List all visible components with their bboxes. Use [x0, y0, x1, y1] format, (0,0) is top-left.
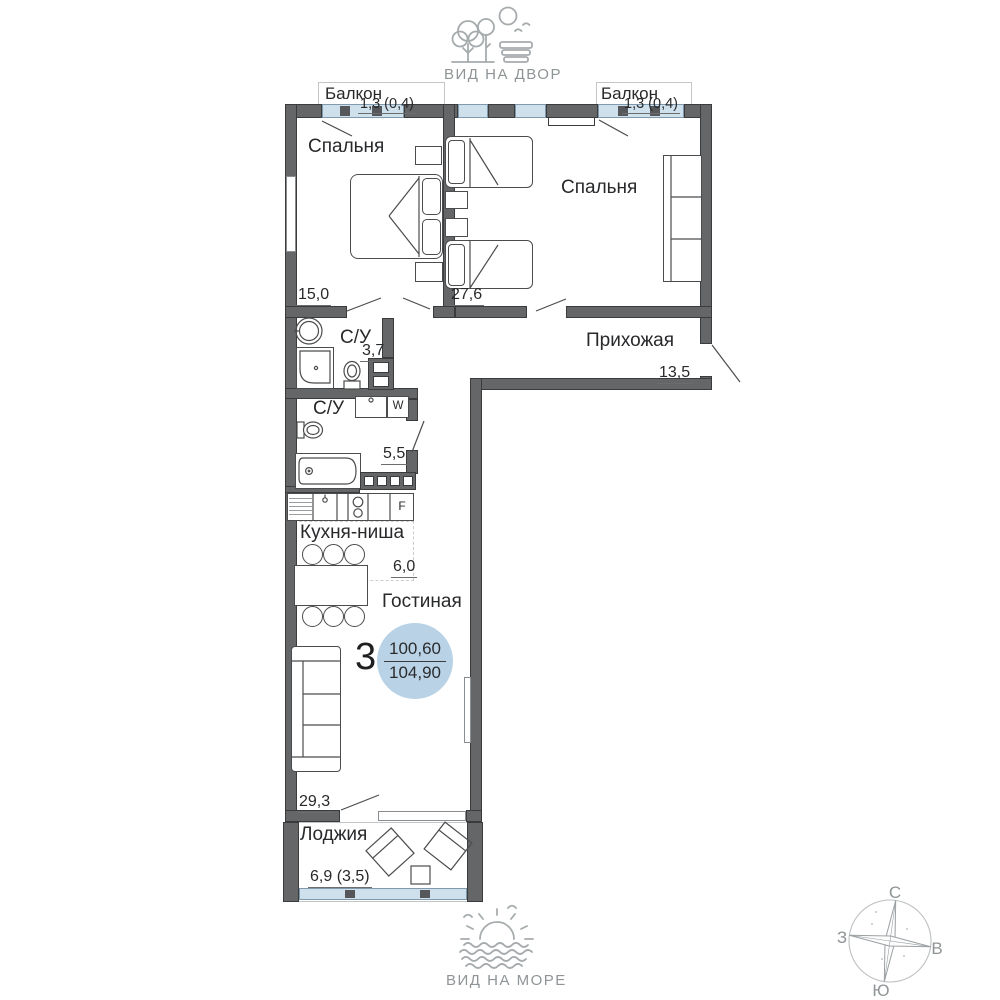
courtyard-view-icon — [448, 4, 548, 66]
sofa — [291, 646, 341, 772]
living-room-label: Гостиная — [382, 591, 462, 613]
compass-west: З — [837, 928, 847, 947]
dining-table — [294, 565, 368, 606]
pillow — [422, 178, 441, 215]
bedroom-right-area: 27,6 — [449, 286, 484, 306]
sea-view-icon — [452, 903, 552, 969]
chair — [344, 606, 365, 627]
compass-rose: С В Ю З — [832, 884, 952, 1000]
pillow — [448, 140, 465, 184]
chair — [323, 606, 344, 627]
window-sill — [378, 811, 466, 821]
bathroom-large-label: С/У — [313, 398, 344, 420]
hallway-label: Прихожая — [586, 330, 674, 352]
nightstand — [445, 218, 468, 237]
vent-shaft-cell — [403, 476, 413, 486]
window-frame — [420, 890, 430, 898]
shower-tray — [296, 347, 334, 389]
vent-shaft-cell — [373, 362, 389, 373]
chair — [302, 544, 323, 565]
floor-plan-page: ВИД НА ДВОР Балкон 1,3 (0,4) Балкон 1,3 … — [0, 0, 1000, 1000]
window-glazing — [515, 104, 546, 118]
wall — [566, 306, 712, 318]
area-badge: 100,60 104,90 — [377, 623, 453, 699]
compass-south: Ю — [872, 981, 889, 1000]
bedroom-left-label: Спальня — [308, 136, 384, 158]
bedroom-right-label: Спальня — [561, 177, 637, 199]
fridge-label: F — [392, 499, 412, 513]
rooms-count: 3 — [355, 636, 376, 679]
nightstand — [415, 146, 442, 165]
window-frame — [340, 106, 350, 116]
balcony-right-area: 1,3 (0,4) — [622, 96, 680, 114]
wall — [433, 306, 455, 318]
window-frame — [345, 890, 355, 898]
total-area-value: 104,90 — [386, 662, 444, 685]
window-glazing — [458, 104, 488, 118]
bathroom-large-area: 5,5 — [381, 445, 407, 465]
pillow — [422, 219, 441, 255]
wall — [285, 306, 347, 318]
sink-drainer — [289, 496, 312, 518]
window-left-wall — [286, 176, 296, 252]
nightstand — [445, 191, 468, 209]
loggia-label: Лоджия — [300, 824, 367, 846]
wall — [467, 822, 483, 902]
chair — [344, 544, 365, 565]
wall — [466, 810, 482, 822]
vent-shaft-cell — [373, 376, 389, 387]
wall — [546, 104, 598, 118]
wall — [406, 450, 418, 474]
window-glazing — [299, 888, 467, 900]
living-area-value: 100,60 — [384, 638, 446, 662]
washer-label: W — [388, 400, 408, 412]
chair — [323, 544, 344, 565]
living-room-area: 29,3 — [297, 793, 332, 813]
vanity-sink — [355, 396, 387, 418]
vent-shaft-cell — [377, 476, 387, 486]
wall — [470, 378, 482, 822]
vent-shaft-cell — [390, 476, 400, 486]
bathroom-small-area: 3,7 — [360, 342, 386, 362]
loggia-area: 6,9 (3,5) — [308, 868, 372, 888]
courtyard-view-label: ВИД НА ДВОР — [444, 66, 562, 83]
vent-shaft-cell — [364, 476, 374, 486]
window-sill — [548, 117, 595, 126]
door-leaf — [464, 677, 471, 743]
wardrobe — [663, 155, 702, 282]
wall — [455, 306, 527, 318]
chair — [302, 606, 323, 627]
nightstand — [415, 262, 443, 282]
sea-view-label: ВИД НА МОРЕ — [446, 972, 567, 989]
compass-north: С — [889, 884, 901, 902]
hallway-area: 13,5 — [657, 364, 692, 384]
pillow — [448, 244, 465, 286]
bathtub — [295, 453, 361, 489]
wall — [283, 822, 299, 902]
bedroom-left-area: 15,0 — [296, 286, 331, 306]
balcony-left-area: 1,3 (0,4) — [358, 96, 416, 114]
wall — [488, 104, 515, 118]
kitchen-area: 6,0 — [391, 558, 417, 578]
compass-east: В — [931, 939, 942, 958]
kitchen-label: Кухня-ниша — [300, 522, 404, 544]
